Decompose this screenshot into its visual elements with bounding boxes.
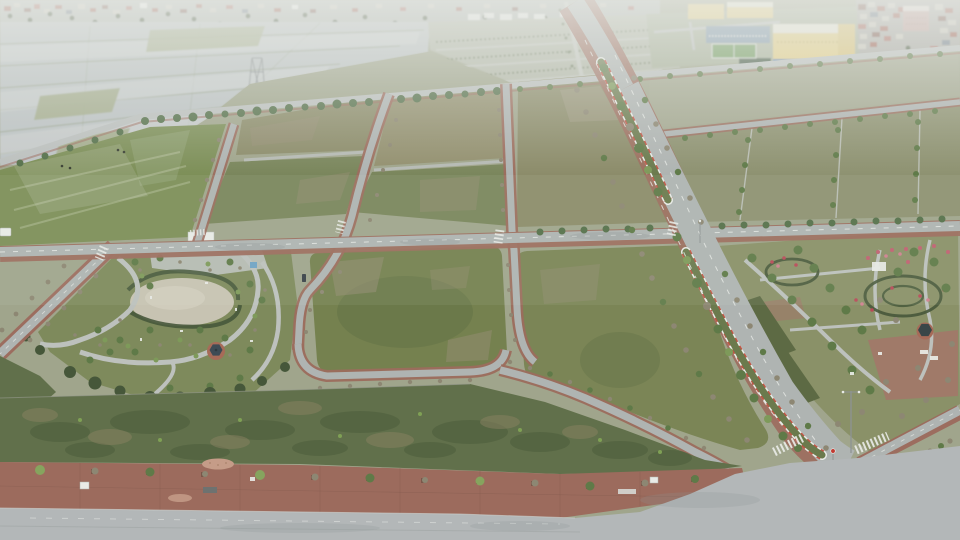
park-bare-tree — [158, 343, 162, 347]
scrub-dark-patch — [592, 441, 648, 459]
scrub-dry-patch — [480, 415, 520, 429]
park-bench — [250, 340, 253, 342]
park-shrub — [103, 338, 108, 343]
park-white-feature — [878, 352, 882, 355]
utility-box — [80, 482, 89, 489]
scrub-bush — [158, 438, 162, 442]
park-bench — [180, 330, 183, 332]
scene-canvas — [0, 0, 960, 540]
park-white-feature — [850, 372, 854, 375]
brick-pile — [168, 494, 192, 502]
park-shrub — [126, 344, 131, 349]
scrub-dark-patch — [404, 442, 456, 458]
tree — [823, 445, 829, 451]
park-shrub — [178, 338, 183, 343]
bare-tree — [62, 306, 67, 311]
park-fringe-tree — [35, 345, 45, 355]
plot-green-patch — [580, 332, 660, 388]
bare-tree — [835, 421, 841, 427]
scrub-dark-patch — [30, 422, 90, 442]
park-fringe-tree — [89, 377, 102, 390]
tree — [842, 306, 851, 315]
scrub-bush — [518, 428, 522, 432]
scrub-bush — [338, 434, 342, 438]
utility-box — [650, 477, 658, 483]
sidewalk-tree — [202, 471, 208, 477]
scrub-bush — [658, 450, 662, 454]
tree — [671, 323, 677, 329]
tree — [648, 416, 652, 420]
median-tree — [764, 415, 772, 423]
park-bare-tree — [118, 318, 122, 322]
park-shrub — [107, 349, 114, 356]
tree — [726, 416, 732, 422]
scrub-dry-patch — [562, 425, 598, 439]
tree — [805, 423, 811, 429]
park-bare-tree — [228, 353, 232, 357]
park-fringe-tree — [280, 362, 290, 372]
park-shrub — [253, 314, 258, 319]
brick-pile-texture — [225, 462, 227, 464]
tree — [528, 366, 532, 370]
park-shrub — [87, 357, 94, 364]
scrub-dark-patch — [292, 440, 348, 456]
sidewalk-tree — [92, 468, 99, 475]
tree — [808, 318, 817, 327]
tree — [608, 397, 612, 401]
park-shrub — [194, 354, 199, 359]
bare-tree — [859, 409, 865, 415]
bare-tree — [893, 317, 899, 323]
park-shrub — [154, 358, 159, 363]
park-white-feature — [930, 356, 938, 360]
tree — [508, 360, 512, 364]
scrub-dry-patch — [22, 408, 58, 422]
road-wear — [220, 523, 380, 533]
flower-bed — [870, 308, 874, 312]
sidewalk-tree — [422, 477, 428, 483]
bare-tree — [899, 413, 905, 419]
tree — [828, 342, 837, 351]
scrub-dry-patch — [210, 435, 250, 449]
scene-root — [0, 0, 960, 540]
bare-tree — [304, 330, 308, 334]
tree — [760, 349, 766, 355]
tree — [547, 371, 553, 377]
tree — [568, 380, 572, 384]
park-fringe-tree — [257, 376, 267, 386]
bare-tree — [46, 322, 51, 327]
tree — [710, 394, 716, 400]
park-shrub — [197, 327, 204, 334]
tree — [744, 437, 750, 443]
tree — [684, 436, 688, 440]
park-bench — [235, 308, 237, 311]
bare-tree — [923, 397, 929, 403]
bare-tree — [949, 341, 955, 347]
tree — [702, 446, 706, 450]
scrub-bush — [598, 438, 602, 442]
park-bare-tree — [73, 333, 77, 337]
park-shrub — [167, 385, 174, 392]
park-white-feature — [920, 350, 928, 354]
median-tree — [750, 394, 759, 403]
scrub-bush — [418, 412, 422, 416]
tree — [587, 387, 593, 393]
park-shrub — [132, 349, 139, 356]
park-fringe-tree — [64, 366, 76, 378]
scrub-bush — [78, 418, 82, 422]
park-shrub — [95, 327, 102, 334]
aerial-photograph — [0, 0, 960, 540]
sidewalk-tree — [691, 475, 699, 483]
sidewalk-tree — [532, 480, 539, 487]
atmospheric-haze — [0, 0, 960, 175]
scrub-dark-patch — [648, 450, 692, 466]
street-light-head — [858, 391, 861, 394]
park-bare-tree — [98, 343, 102, 347]
tree — [789, 399, 795, 405]
bare-tree — [438, 379, 442, 383]
scrub-dry-patch — [88, 429, 132, 445]
tree — [665, 425, 671, 431]
park-bare-tree — [188, 343, 192, 347]
bare-tree — [945, 377, 951, 383]
brick-pile-texture — [209, 462, 211, 464]
park-shrub — [247, 347, 254, 354]
park-shrub — [147, 327, 154, 334]
bare-tree — [468, 378, 472, 382]
road-wear — [470, 521, 570, 531]
median-tree — [725, 348, 733, 356]
bare-tree — [915, 365, 921, 371]
bare-tree — [378, 382, 382, 386]
tree — [696, 371, 702, 377]
tree — [683, 347, 689, 353]
bare-tree — [513, 338, 517, 342]
bare-tree — [28, 338, 33, 343]
scrub-dark-patch — [510, 432, 570, 452]
tree — [858, 326, 867, 335]
median-tree — [736, 370, 746, 380]
tree — [747, 323, 753, 329]
sidewalk-tree — [255, 470, 265, 480]
sidewalk-tree — [586, 482, 595, 491]
scrub-bush — [238, 418, 242, 422]
tree — [866, 386, 875, 395]
park-shrub — [117, 337, 124, 344]
park-bare-tree — [253, 328, 257, 332]
bare-tree — [14, 312, 19, 317]
road-wear — [640, 492, 760, 508]
sidewalk-tree — [366, 474, 375, 483]
scrub-dry-patch — [278, 401, 322, 415]
sidewalk-tree — [146, 468, 155, 477]
gazebo-finial — [215, 349, 218, 352]
paver-stack — [203, 487, 217, 493]
sidewalk-tree — [35, 465, 45, 475]
brick-pile-texture — [217, 464, 219, 466]
median-tree — [714, 325, 723, 334]
bare-tree — [509, 313, 513, 317]
tree — [627, 405, 633, 411]
scrub-dry-patch — [366, 432, 414, 448]
park-bench — [140, 338, 142, 341]
bare-tree — [308, 308, 312, 312]
sidewalk-tree — [312, 474, 319, 481]
tree — [774, 375, 780, 381]
sidewalk-tree — [642, 480, 649, 487]
street-light-head — [842, 391, 845, 394]
slab-stack — [618, 489, 636, 494]
median-tree — [779, 432, 788, 441]
traffic-sign — [831, 449, 836, 454]
tree — [947, 438, 952, 443]
atmospheric-haze — [0, 175, 960, 305]
bare-tree — [883, 379, 889, 385]
sidewalk-tree — [476, 477, 485, 486]
utility-box — [250, 477, 255, 481]
park-shrub — [222, 335, 229, 342]
scrub-dark-patch — [320, 411, 400, 433]
park-shrub — [237, 375, 244, 382]
bare-tree — [408, 380, 412, 384]
